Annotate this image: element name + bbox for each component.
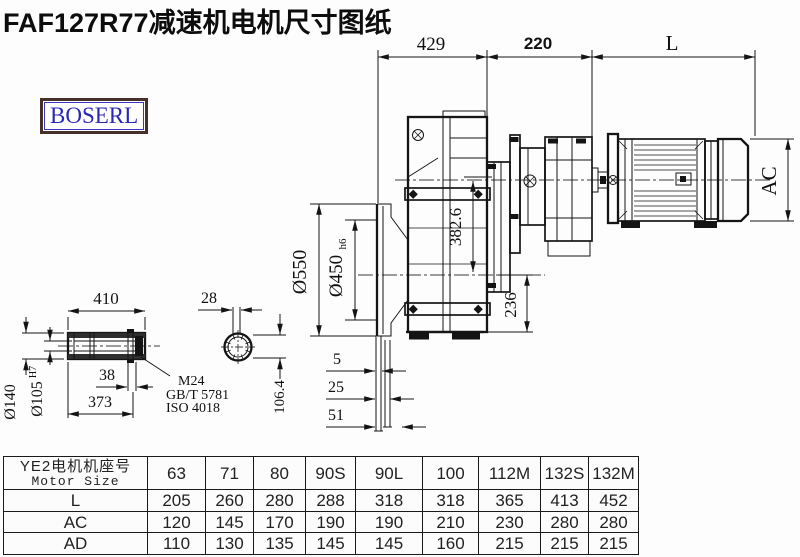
dim-25-label: 25 bbox=[328, 379, 344, 396]
table-cell: 215 bbox=[479, 533, 541, 554]
dim-spigot-tolerance: h6 bbox=[337, 238, 349, 250]
table-cell: 230 bbox=[479, 512, 541, 533]
table-col-132s: 132S bbox=[541, 457, 589, 490]
table-col-71: 71 bbox=[206, 457, 254, 490]
table-cell: 135 bbox=[254, 533, 306, 554]
callout-m24: M24 bbox=[178, 374, 204, 389]
table-cell: 215 bbox=[541, 533, 589, 554]
row-label-AC: AC bbox=[4, 512, 148, 533]
table-col-132m: 132M bbox=[589, 457, 638, 490]
table-cell: 130 bbox=[206, 533, 254, 554]
table-cell: 170 bbox=[254, 512, 306, 533]
table-header-cn: YE2电机机座号 bbox=[20, 459, 131, 474]
dim-38-label: 38 bbox=[99, 367, 115, 384]
dim-373-label: 373 bbox=[88, 394, 112, 411]
drawing-page: FAF127R77减速机电机尺寸图纸 BOSERL 429 220 L bbox=[0, 0, 800, 557]
table-header-en: Motor Size bbox=[31, 475, 119, 488]
table-cell: 145 bbox=[306, 533, 356, 554]
dim-spigot-label: Ø450 bbox=[326, 255, 347, 297]
top-dimensions: 429 220 L bbox=[378, 31, 755, 235]
table-cell: 280 bbox=[541, 512, 589, 533]
table-cell: 145 bbox=[206, 512, 254, 533]
table-cell: 260 bbox=[206, 490, 254, 512]
dim-L-label: L bbox=[666, 31, 679, 55]
table-col-90l: 90L bbox=[356, 457, 423, 490]
table-cell: 365 bbox=[479, 490, 541, 512]
table-cell: 205 bbox=[148, 490, 206, 512]
table-cell: 190 bbox=[306, 512, 356, 533]
table-cell: 288 bbox=[306, 490, 356, 512]
dim-od140-label: Ø140 bbox=[2, 384, 19, 420]
table-cell: 452 bbox=[589, 490, 638, 512]
table-cell: 280 bbox=[589, 512, 638, 533]
table-cell: 160 bbox=[423, 533, 479, 554]
shaft-detail: 410 Ø140 Ø105 H7 38 373 bbox=[2, 289, 229, 420]
motor-size-table: YE2电机机座号 Motor Size 63 71 80 90S 90L 100… bbox=[3, 456, 639, 555]
table-col-100: 100 bbox=[423, 457, 479, 490]
row-label-AD: AD bbox=[4, 533, 148, 554]
table-cell: 120 bbox=[148, 512, 206, 533]
table-col-80: 80 bbox=[254, 457, 306, 490]
table-cell: 190 bbox=[356, 512, 423, 533]
table-col-112m: 112M bbox=[479, 457, 541, 490]
dim-429-label: 429 bbox=[417, 34, 446, 55]
table-cell: 413 bbox=[541, 490, 589, 512]
dim-28-label: 28 bbox=[201, 290, 217, 307]
dim-bore105-label: Ø105 bbox=[29, 381, 46, 417]
table-col-90s: 90S bbox=[306, 457, 356, 490]
dim-flange-od-label: Ø550 bbox=[289, 250, 311, 294]
table-cell: 110 bbox=[148, 533, 206, 554]
table-cell: 210 bbox=[423, 512, 479, 533]
table-header-motor-size: YE2电机机座号 Motor Size bbox=[4, 457, 148, 490]
dim-motor-ac-label: AC bbox=[757, 166, 781, 195]
table-col-63: 63 bbox=[148, 457, 206, 490]
dim-bore-tolerance: H7 bbox=[28, 366, 39, 378]
dim-base-height-label: 236 bbox=[501, 292, 520, 318]
table-cell: 280 bbox=[254, 490, 306, 512]
dim-106-label: 106.4 bbox=[272, 380, 288, 414]
table-cell: 318 bbox=[356, 490, 423, 512]
callout-iso4018: ISO 4018 bbox=[166, 401, 220, 416]
motor bbox=[608, 134, 748, 228]
dim-220-label: 220 bbox=[524, 34, 552, 53]
dim-5-label: 5 bbox=[333, 351, 341, 368]
dim-51-label: 51 bbox=[328, 407, 344, 424]
table-cell: 318 bbox=[423, 490, 479, 512]
dim-center-height-label: 382.6 bbox=[446, 208, 465, 246]
table-cell: 145 bbox=[356, 533, 423, 554]
table-cell: 215 bbox=[589, 533, 638, 554]
input-stage-housing bbox=[487, 135, 608, 292]
row-label-L: L bbox=[4, 490, 148, 512]
dim-410-label: 410 bbox=[93, 289, 119, 308]
